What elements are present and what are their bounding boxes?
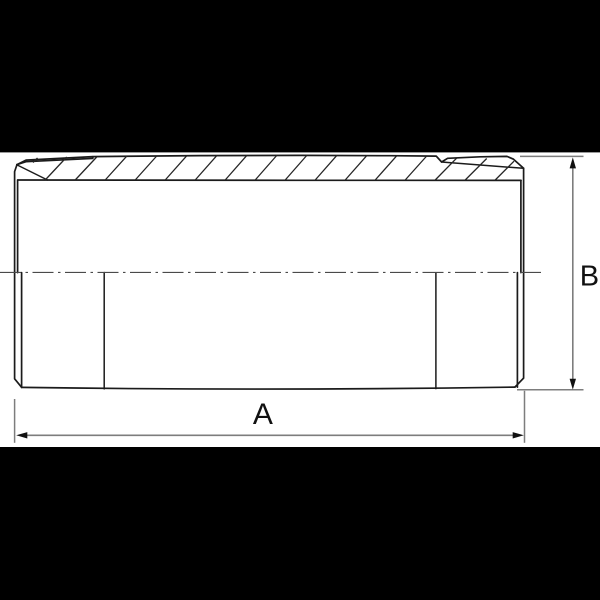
svg-text:A: A <box>253 398 273 431</box>
svg-text:B: B <box>580 261 599 293</box>
